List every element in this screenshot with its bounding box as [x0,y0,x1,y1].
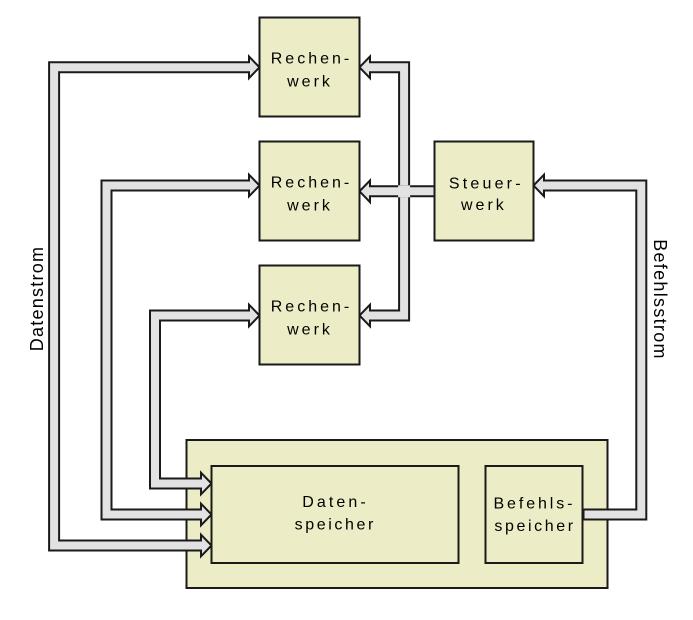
svg-text:Befehlsstrom: Befehlsstrom [650,239,670,360]
svg-text:werk: werk [460,197,507,214]
svg-text:Befehls-: Befehls- [493,495,575,512]
svg-text:werk: werk [286,197,333,214]
svg-text:Rechen-: Rechen- [271,51,352,68]
svg-text:werk: werk [286,321,333,338]
svg-text:speicher: speicher [494,518,575,535]
svg-text:Rechen-: Rechen- [271,299,352,316]
svg-text:werk: werk [286,73,333,90]
svg-text:Datenstrom: Datenstrom [27,246,47,352]
svg-text:Steuer-: Steuer- [449,176,524,193]
svg-text:Daten-: Daten- [302,494,369,511]
svg-text:speicher: speicher [295,516,376,533]
svg-text:Rechen-: Rechen- [271,175,352,192]
